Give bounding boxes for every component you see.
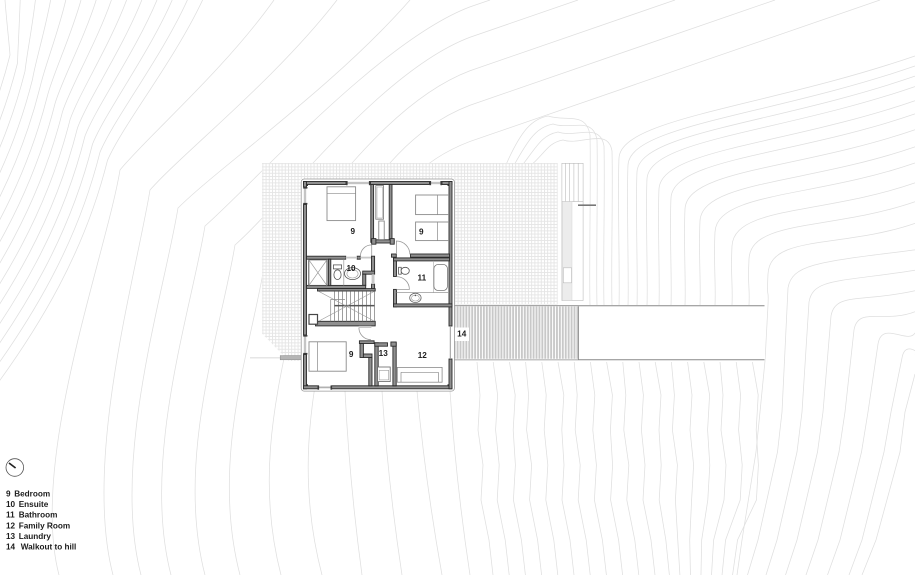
svg-text:9: 9 — [419, 228, 424, 237]
svg-text:12: 12 — [6, 521, 16, 530]
svg-text:12: 12 — [418, 351, 428, 360]
svg-text:13: 13 — [379, 349, 389, 358]
svg-text:14: 14 — [6, 542, 16, 551]
svg-text:Laundry: Laundry — [19, 532, 52, 541]
svg-text:11: 11 — [417, 274, 426, 283]
svg-text:9: 9 — [6, 490, 11, 499]
svg-text:10: 10 — [346, 264, 356, 273]
svg-text:Ensuite: Ensuite — [19, 500, 49, 509]
svg-text:9: 9 — [349, 350, 354, 359]
svg-text:Family Room: Family Room — [19, 521, 70, 530]
svg-text:Walkout to hill: Walkout to hill — [21, 542, 77, 551]
svg-text:9: 9 — [351, 227, 356, 236]
svg-text:13: 13 — [6, 532, 16, 541]
svg-text:14: 14 — [457, 330, 467, 339]
svg-text:Bedroom: Bedroom — [14, 490, 50, 499]
svg-text:10: 10 — [6, 500, 16, 509]
svg-text:Bathroom: Bathroom — [19, 511, 58, 520]
svg-text:11: 11 — [6, 511, 15, 520]
